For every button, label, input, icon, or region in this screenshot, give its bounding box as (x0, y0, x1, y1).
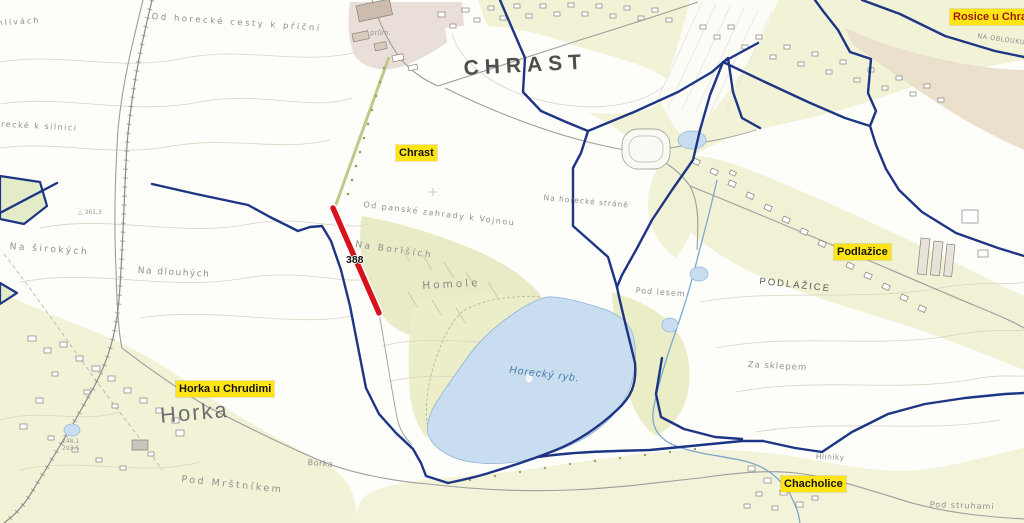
field-name-hliniky: Hliníky (816, 452, 845, 462)
field-name-borka: Borka (307, 458, 333, 469)
place-marker-podlazice[interactable]: Podlažice (834, 244, 891, 260)
place-marker-rosice-u-chrasti[interactable]: Rosice u Chrasti (950, 9, 1024, 25)
place-marker-horka-u-chrudimi[interactable]: Horka u Chrudimi (176, 381, 274, 397)
spot-height-label: △ 361,3 (78, 209, 102, 216)
place-marker-chacholice[interactable]: Chacholice (781, 476, 846, 492)
elevation-label-1: 248,1 (62, 438, 79, 445)
map-viewport[interactable]: Od horecké cesty k příční Na hlívách Od … (0, 0, 1024, 523)
factory-label: prům. (370, 29, 391, 37)
place-marker-chrast[interactable]: Chrast (396, 145, 437, 161)
route-388-badge: 388 (346, 254, 364, 266)
elevation-label-2: 293,5 (62, 445, 79, 452)
